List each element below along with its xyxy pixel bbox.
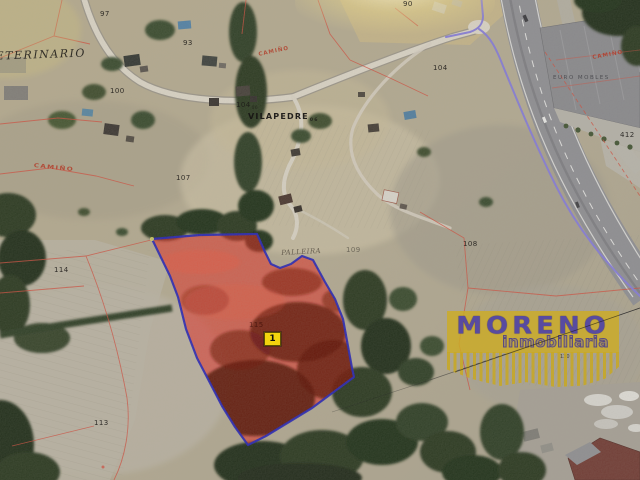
satellite-imagery (0, 0, 640, 480)
aerial-cadastral-map: VETERINARIO 97 93 100 90 10406 VILAPEDRE… (0, 0, 640, 480)
watermark-brand: MORENO (447, 313, 619, 339)
watermark-moreno: MORENO inmobiliaria (447, 311, 619, 353)
